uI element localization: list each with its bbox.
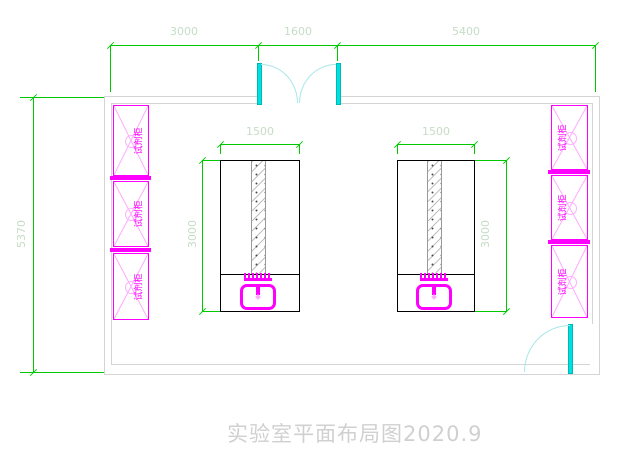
cabinet-separator <box>548 240 590 244</box>
sink-grill-icon <box>244 273 272 281</box>
cabinet-separator <box>110 176 151 180</box>
cabinet-label: 试剂柜 <box>555 268 568 295</box>
dim-label-bench2-width: 1500 <box>411 126 461 138</box>
dim-line-bench1-depth <box>202 160 203 312</box>
dim-line-left <box>33 97 34 373</box>
dim-label-bench2-depth: 3000 <box>480 214 492 254</box>
cabinet-label: 试剂柜 <box>132 273 145 300</box>
reagent-cabinet: 试剂柜 <box>113 105 149 176</box>
door-swing-arc-right <box>299 64 336 103</box>
dim-ext <box>475 311 506 312</box>
dim-ext-top-left <box>110 45 111 92</box>
stool-center-dot <box>255 294 261 300</box>
dim-label-top-middle: 1600 <box>273 26 323 38</box>
sink-grill-icon <box>420 273 448 281</box>
door-leaf-right <box>336 63 341 105</box>
dim-line-top <box>110 45 596 46</box>
dim-ext <box>202 311 220 312</box>
dim-ext-top-mid1 <box>258 45 259 61</box>
door-opening-right <box>590 324 599 373</box>
reagent-cabinet: 试剂柜 <box>113 253 149 320</box>
bench-hatch-strip <box>427 161 442 274</box>
lab-bench-right <box>397 160 475 312</box>
cabinet-label: 试剂柜 <box>555 124 568 151</box>
dim-ext-top-mid2 <box>337 45 338 61</box>
dim-ext <box>475 160 506 161</box>
floorplan-canvas: 试剂柜 试剂柜 试剂柜 试剂柜 试剂柜 试剂柜 <box>0 0 619 469</box>
dim-line-bench1-width <box>220 144 300 145</box>
cabinet-separator <box>110 248 151 252</box>
dim-label-bench1-width: 1500 <box>235 126 285 138</box>
dim-label-top-left: 3000 <box>159 26 209 38</box>
dim-ext-top-right <box>595 45 596 92</box>
reagent-cabinet: 试剂柜 <box>551 175 588 240</box>
dim-line-bench2-width <box>397 144 475 145</box>
door-swing-arc-left <box>261 64 298 103</box>
dim-label-left-height: 5370 <box>16 214 28 254</box>
stool-icon <box>416 284 452 310</box>
dim-line-bench2-depth <box>506 160 507 312</box>
bench-hatch-strip <box>251 161 266 274</box>
cabinet-label: 试剂柜 <box>555 194 568 221</box>
dim-ext <box>202 160 220 161</box>
reagent-cabinet: 试剂柜 <box>113 181 149 247</box>
dim-label-bench1-depth: 3000 <box>187 214 199 254</box>
reagent-cabinet: 试剂柜 <box>551 105 588 170</box>
drawing-title: 实验室平面布局图2020.9 <box>227 418 482 448</box>
cabinet-separator <box>548 170 590 174</box>
stool-center-dot <box>431 294 437 300</box>
stool-icon <box>240 284 276 310</box>
cabinet-label: 试剂柜 <box>132 200 145 227</box>
wall-inner <box>111 103 593 365</box>
lab-bench-left <box>220 160 300 312</box>
cabinet-label: 试剂柜 <box>132 127 145 154</box>
reagent-cabinet: 试剂柜 <box>551 245 588 318</box>
dim-label-top-right: 5400 <box>441 26 491 38</box>
